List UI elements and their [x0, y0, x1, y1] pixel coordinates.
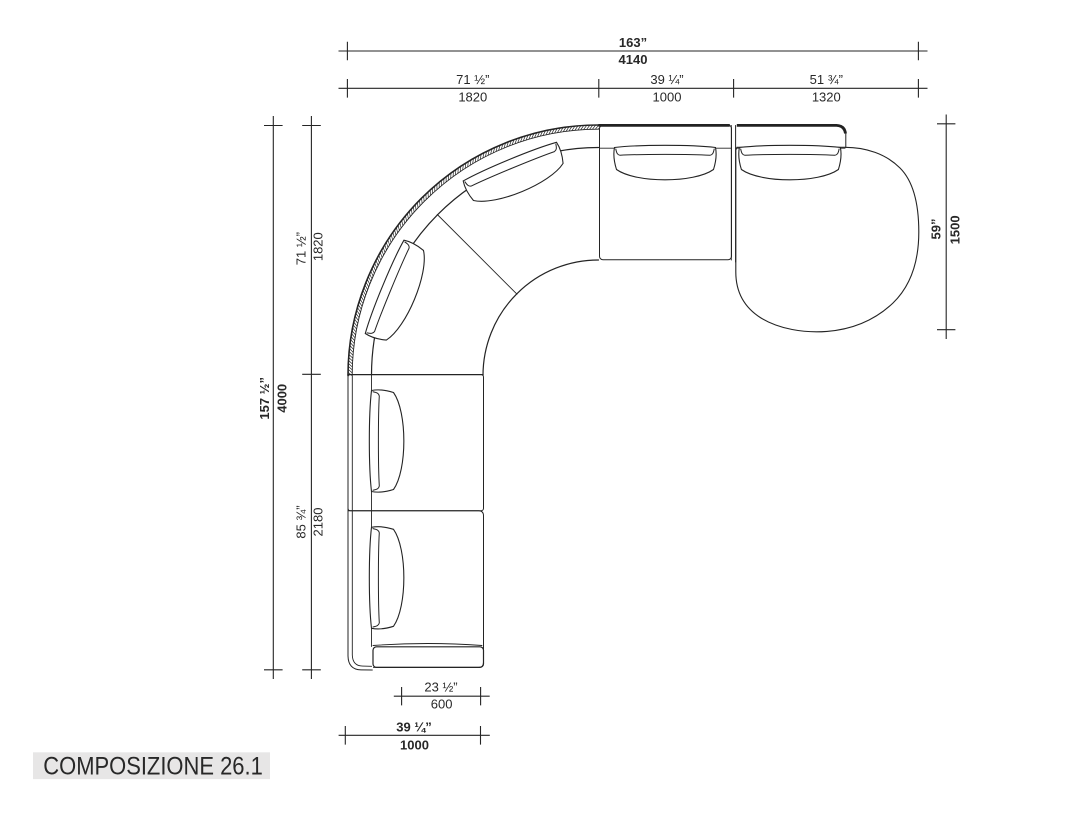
- svg-text:39 ¼”: 39 ¼”: [396, 719, 431, 734]
- svg-text:4140: 4140: [619, 52, 648, 67]
- svg-text:1000: 1000: [400, 738, 429, 753]
- svg-text:COMPOSIZIONE 26.1: COMPOSIZIONE 26.1: [43, 753, 262, 781]
- svg-text:85 ¾”: 85 ¾”: [294, 505, 309, 538]
- svg-text:1500: 1500: [947, 215, 962, 244]
- svg-text:4000: 4000: [275, 384, 290, 413]
- svg-text:600: 600: [431, 696, 453, 711]
- svg-text:71 ½”: 71 ½”: [294, 232, 309, 265]
- svg-text:1820: 1820: [310, 232, 325, 261]
- svg-text:39 ¼”: 39 ¼”: [650, 72, 683, 87]
- svg-text:157 ½”: 157 ½”: [257, 377, 272, 420]
- svg-text:59”: 59”: [929, 219, 944, 240]
- svg-text:1820: 1820: [458, 89, 487, 104]
- svg-text:51 ¾”: 51 ¾”: [810, 72, 843, 87]
- svg-text:71 ½”: 71 ½”: [456, 72, 489, 87]
- svg-text:23 ½”: 23 ½”: [424, 680, 457, 695]
- svg-text:1320: 1320: [812, 89, 841, 104]
- svg-text:2180: 2180: [310, 508, 325, 537]
- svg-text:1000: 1000: [653, 89, 682, 104]
- svg-text:163”: 163”: [619, 35, 647, 50]
